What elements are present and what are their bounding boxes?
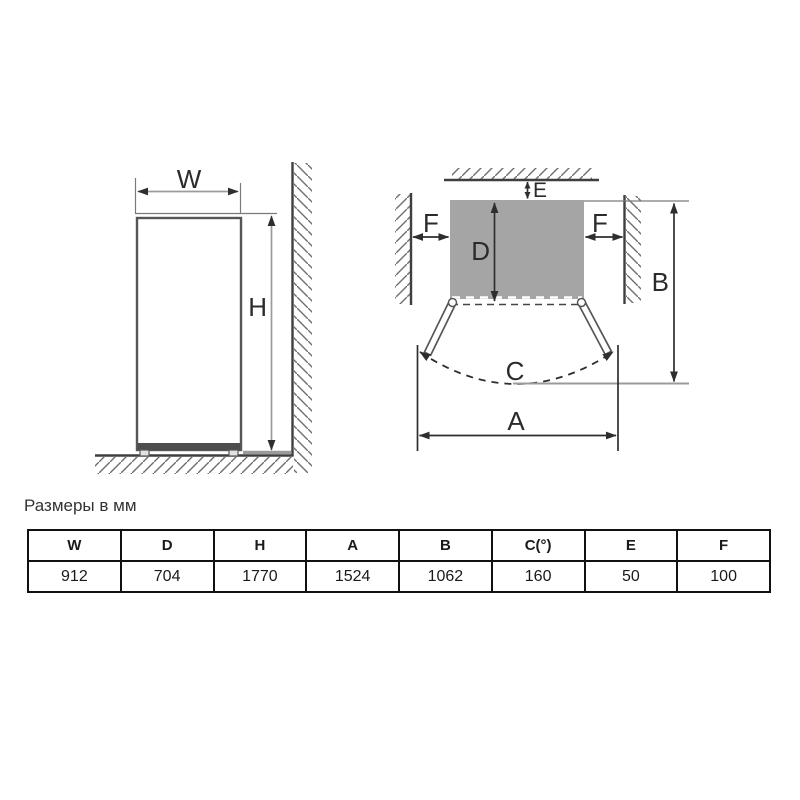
wall-hatching xyxy=(294,163,312,473)
front-view-diagram: W H xyxy=(95,162,312,474)
table-header-row: W D H A B C(°) E F xyxy=(28,530,770,561)
open-door-right xyxy=(579,303,611,355)
col-header-f: F xyxy=(677,530,770,561)
door-hinge-left xyxy=(449,299,457,307)
fridge-base xyxy=(138,443,240,450)
rear-wall-hatching xyxy=(452,168,592,179)
col-header-e: E xyxy=(585,530,678,561)
value-b: 1062 xyxy=(399,561,492,592)
top-view-diagram: E F F D C B A xyxy=(395,168,689,451)
installation-diagrams: W H xyxy=(0,0,800,490)
a-dimension-label: A xyxy=(507,406,525,436)
col-header-d: D xyxy=(121,530,214,561)
value-w: 912 xyxy=(28,561,121,592)
fridge-foot-left xyxy=(140,450,149,456)
d-dimension-label: D xyxy=(471,236,490,266)
value-e: 50 xyxy=(585,561,678,592)
door-hinge-right xyxy=(578,299,586,307)
h-dimension-label: H xyxy=(248,292,267,322)
col-header-b: B xyxy=(399,530,492,561)
col-header-w: W xyxy=(28,530,121,561)
col-header-a: A xyxy=(306,530,399,561)
value-c: 160 xyxy=(492,561,585,592)
dimensions-table: W D H A B C(°) E F 912 704 1770 1524 106… xyxy=(27,529,771,593)
fridge-top-view-body xyxy=(450,200,584,299)
f-right-dimension-label: F xyxy=(592,208,608,238)
page: W H xyxy=(0,0,800,800)
fridge-foot-right xyxy=(229,450,238,456)
value-d: 704 xyxy=(121,561,214,592)
value-a: 1524 xyxy=(306,561,399,592)
right-wall-hatching xyxy=(626,196,641,303)
table-value-row: 912 704 1770 1524 1062 160 50 100 xyxy=(28,561,770,592)
f-left-dimension-label: F xyxy=(423,208,439,238)
col-header-h: H xyxy=(214,530,307,561)
w-dimension-label: W xyxy=(177,164,202,194)
left-wall-hatching xyxy=(395,194,410,304)
b-dimension-label: B xyxy=(652,267,669,297)
col-header-c: C(°) xyxy=(492,530,585,561)
fridge-cabinet xyxy=(137,218,241,450)
floor-hatching xyxy=(95,457,293,474)
c-dimension-label: C xyxy=(506,356,525,386)
table-caption: Размеры в мм xyxy=(24,496,137,516)
open-door-left xyxy=(424,303,454,356)
value-f: 100 xyxy=(677,561,770,592)
value-h: 1770 xyxy=(214,561,307,592)
e-dimension-label: E xyxy=(533,179,547,202)
